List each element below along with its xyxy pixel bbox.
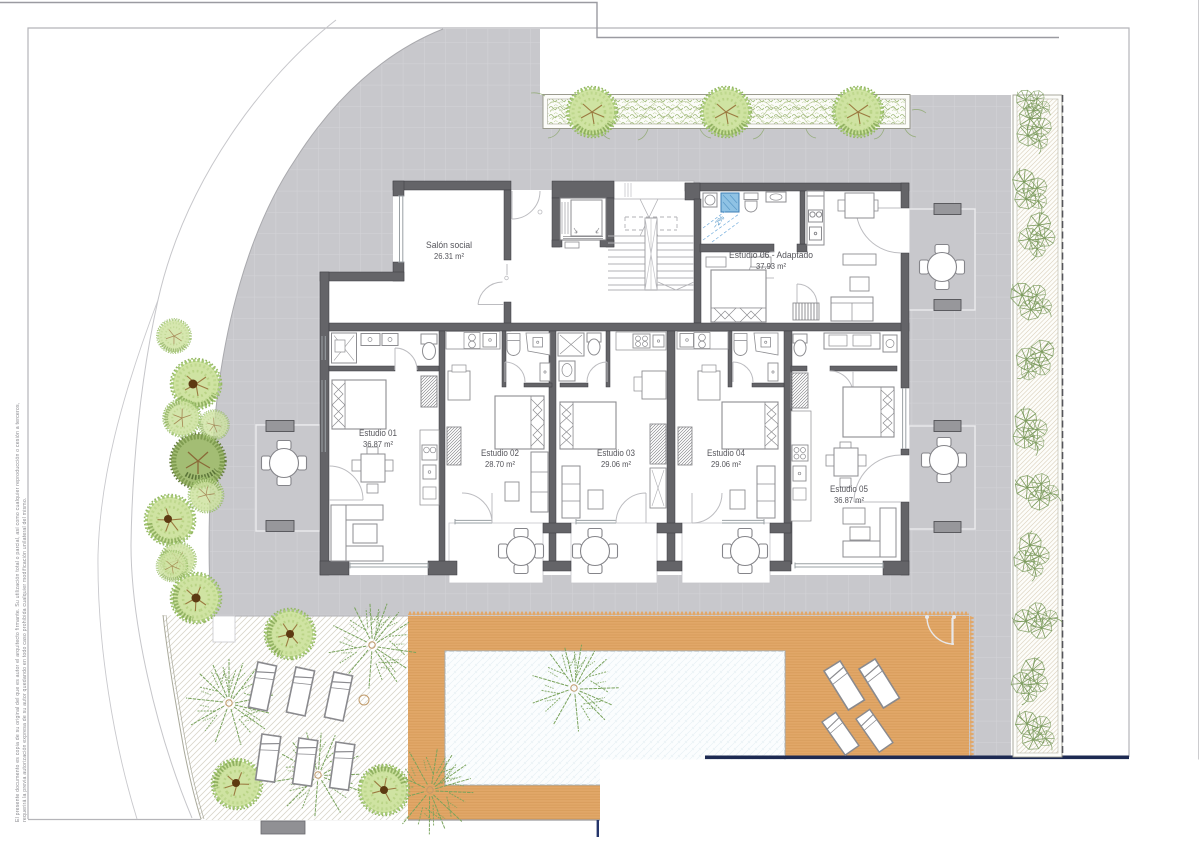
svg-text:requerirá la previa autorizaci: requerirá la previa autorización expresa… (22, 497, 28, 822)
svg-text:El presente documento es copia: El presente documento es copia de su ori… (15, 403, 21, 822)
svg-text:36.87 m²: 36.87 m² (363, 439, 393, 449)
svg-text:36.87 m²: 36.87 m² (834, 495, 864, 505)
svg-text:29.06 m²: 29.06 m² (711, 459, 741, 469)
svg-text:Estudio 04: Estudio 04 (707, 448, 745, 458)
svg-text:Estudio 06 - Adaptado: Estudio 06 - Adaptado (729, 250, 813, 260)
svg-text:26.31 m²: 26.31 m² (434, 251, 464, 261)
svg-text:Estudio 03: Estudio 03 (597, 448, 635, 458)
svg-text:Estudio 05: Estudio 05 (830, 484, 868, 494)
svg-text:Estudio 01: Estudio 01 (359, 428, 397, 438)
svg-text:Estudio 02: Estudio 02 (481, 448, 519, 458)
svg-text:37.93 m²: 37.93 m² (756, 261, 786, 271)
svg-text:28.70 m²: 28.70 m² (485, 459, 515, 469)
svg-text:29.06 m²: 29.06 m² (601, 459, 631, 469)
svg-text:Salón social: Salón social (426, 240, 472, 250)
